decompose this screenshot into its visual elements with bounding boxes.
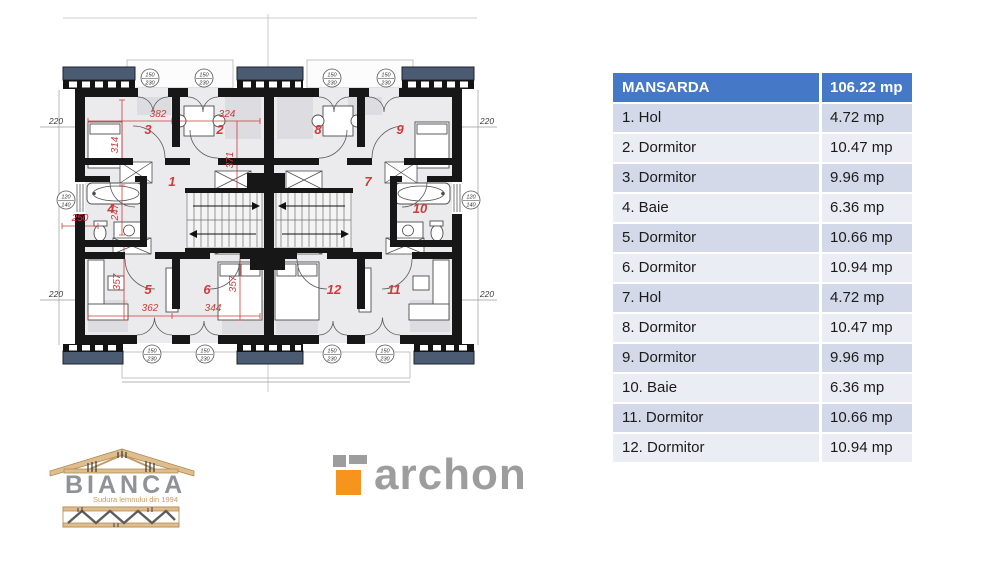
window-label-circle: 150 230 (323, 69, 341, 87)
room-area: 10.47 mp (822, 314, 912, 342)
dim-344: 344 (205, 303, 222, 314)
table-row: 7. Hol 4.72 mp (613, 284, 912, 312)
dim-324: 324 (219, 109, 236, 120)
dim-220-right-lower: 220 (479, 289, 494, 299)
room-area: 6.36 mp (822, 194, 912, 222)
room-label: 3. Dormitor (613, 164, 822, 192)
room-area: 9.96 mp (822, 164, 912, 192)
dim-357-left: 357 (112, 273, 123, 290)
room-label: 8. Dormitor (613, 314, 822, 342)
window-label-circle: 150 230 (377, 69, 395, 87)
window-width: 120 (466, 195, 476, 201)
room-area: 10.47 mp (822, 134, 912, 162)
room-label: 9. Dormitor (613, 344, 822, 372)
window-height: 230 (326, 81, 337, 87)
window-height: 230 (379, 357, 390, 363)
window-height: 230 (144, 81, 155, 87)
side-window-label-circle: 120 140 (462, 191, 480, 209)
window-width: 150 (327, 349, 337, 355)
bianca-logo: BIANCA Sudura lemnului din 1994 (48, 446, 228, 550)
room-area: 10.66 mp (822, 404, 912, 432)
window-height: 230 (146, 357, 157, 363)
room-label: 2. Dormitor (613, 134, 822, 162)
archon-orange-square (336, 470, 361, 495)
window-width: 150 (327, 73, 337, 79)
flat-truss-graphic (63, 507, 179, 527)
dim-371: 371 (225, 152, 236, 169)
table-row: 10. Baie 6.36 mp (613, 374, 912, 402)
table-row: 12. Dormitor 10.94 mp (613, 434, 912, 462)
window-label-circle: 150 230 (376, 345, 394, 363)
table-header-row: MANSARDA 106.22 mp (613, 73, 912, 102)
room-number-1: 1 (168, 174, 175, 189)
dim-220-left-upper: 220 (48, 116, 63, 126)
bianca-tagline: Sudura lemnului din 1994 (93, 495, 178, 504)
window-width: 120 (61, 195, 71, 201)
window-width: 150 (199, 73, 209, 79)
table-row: 8. Dormitor 10.47 mp (613, 314, 912, 342)
dim-362: 362 (142, 303, 159, 314)
window-height: 230 (199, 357, 210, 363)
dim-382: 382 (150, 109, 167, 120)
table-row: 6. Dormitor 10.94 mp (613, 254, 912, 282)
room-number-2: 2 (215, 122, 224, 137)
dim-250: 250 (71, 213, 89, 224)
dim-220-left-lower: 220 (48, 289, 63, 299)
window-label-circle: 150 230 (323, 345, 341, 363)
table-row: 4. Baie 6.36 mp (613, 194, 912, 222)
window-width: 150 (147, 349, 157, 355)
floor-plan: 220 220 220 220 (0, 0, 520, 400)
room-area: 6.36 mp (822, 374, 912, 402)
room-area: 10.66 mp (822, 224, 912, 252)
window-width: 150 (145, 73, 155, 79)
slide: { "table": { "header": {"label": "MANSAR… (0, 0, 1000, 562)
room-area: 10.94 mp (822, 254, 912, 282)
side-window-label-circle: 120 140 (57, 191, 75, 209)
table-row: 11. Dormitor 10.66 mp (613, 404, 912, 432)
staircase-right (274, 188, 353, 253)
archon-wordmark: archon (374, 453, 527, 497)
room-label: 12. Dormitor (613, 434, 822, 462)
room-area: 4.72 mp (822, 104, 912, 132)
archon-logo: archon (333, 453, 527, 499)
table-header-total-area: 106.22 mp (822, 73, 912, 102)
room-number-4: 4 (106, 201, 115, 216)
room-number-11: 11 (387, 282, 401, 297)
room-number-10: 10 (413, 201, 428, 216)
room-area: 4.72 mp (822, 284, 912, 312)
window-height: 230 (380, 81, 391, 87)
table-row: 3. Dormitor 9.96 mp (613, 164, 912, 192)
window-label-circle: 150 230 (143, 345, 161, 363)
room-label: 5. Dormitor (613, 224, 822, 252)
room-label: 4. Baie (613, 194, 822, 222)
room-label: 10. Baie (613, 374, 822, 402)
window-height: 140 (466, 203, 476, 209)
room-label: 11. Dormitor (613, 404, 822, 432)
room-number-6: 6 (203, 282, 211, 297)
room-number-3: 3 (144, 122, 152, 137)
window-label-circle: 150 230 (141, 69, 159, 87)
window-label-circle: 150 230 (195, 69, 213, 87)
room-area-table: MANSARDA 106.22 mp 1. Hol 4.72 mp 2. Dor… (613, 73, 912, 462)
window-width: 150 (200, 349, 210, 355)
room-area: 10.94 mp (822, 434, 912, 462)
window-label-circle: 150 230 (196, 345, 214, 363)
room-number-12: 12 (327, 282, 342, 297)
room-label: 7. Hol (613, 284, 822, 312)
archon-logo-icon (333, 453, 367, 499)
table-row: 2. Dormitor 10.47 mp (613, 134, 912, 162)
table-row: 9. Dormitor 9.96 mp (613, 344, 912, 372)
room-number-5: 5 (144, 282, 152, 297)
room-number-9: 9 (396, 122, 404, 137)
room-area: 9.96 mp (822, 344, 912, 372)
dim-357-center: 357 (228, 275, 239, 292)
window-width: 150 (381, 73, 391, 79)
window-height: 230 (326, 357, 337, 363)
window-width: 150 (380, 349, 390, 355)
room-number-8: 8 (314, 122, 322, 137)
window-height: 140 (61, 203, 71, 209)
table-header-title: MANSARDA (613, 73, 822, 102)
window-height: 230 (198, 81, 209, 87)
staircase-left (185, 188, 264, 253)
room-number-7: 7 (364, 174, 372, 189)
table-row: 5. Dormitor 10.66 mp (613, 224, 912, 252)
room-label: 6. Dormitor (613, 254, 822, 282)
room-label: 1. Hol (613, 104, 822, 132)
dim-220-right-upper: 220 (479, 116, 494, 126)
dim-314: 314 (110, 136, 121, 153)
table-row: 1. Hol 4.72 mp (613, 104, 912, 132)
